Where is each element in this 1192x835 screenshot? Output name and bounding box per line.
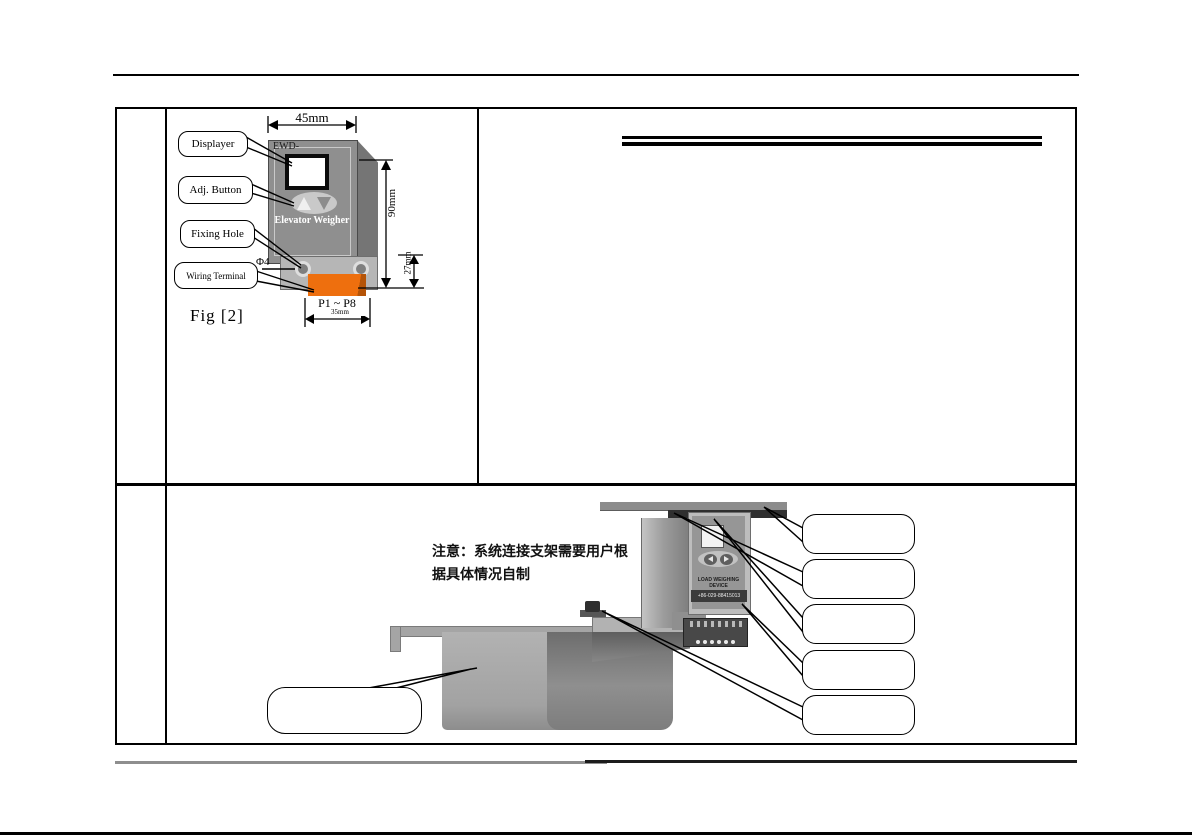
table-row-divider — [117, 483, 1075, 486]
wiring-terminal-label: Wiring Terminal — [186, 271, 246, 281]
callout-bubble-1 — [802, 514, 915, 554]
installed-device-title: LOAD WEIGHING DEVICE — [689, 577, 748, 589]
logo-left-icon — [704, 554, 717, 565]
fixing-hole-label: Fixing Hole — [191, 228, 244, 240]
down-arrow-icon — [317, 197, 331, 210]
device-model-text: EWD- — [273, 141, 299, 152]
connector-pins — [690, 621, 742, 627]
installed-device-logo — [698, 551, 738, 567]
callout-bubble-2 — [802, 559, 915, 599]
callout-wiring-terminal: Wiring Terminal — [174, 262, 258, 289]
callout-bubble-3 — [802, 604, 915, 644]
callout-displayer: Displayer — [178, 131, 248, 157]
dim-width-label: 45mm — [268, 110, 356, 126]
installed-device-phone: +86-029-88415013 — [698, 593, 740, 599]
installed-device-display — [701, 525, 724, 548]
callout-bubble-4 — [802, 650, 915, 690]
footer-rule-dark — [585, 760, 1077, 763]
logo-right-icon — [720, 554, 733, 565]
up-arrow-icon — [297, 197, 311, 210]
install-note: 注意：系统连接支架需要用户根 据具体情况自制 — [432, 540, 642, 586]
callout-fixing-hole: Fixing Hole — [180, 220, 255, 248]
figure-caption: Fig [2] — [190, 306, 244, 326]
device-display-window — [285, 154, 329, 190]
double-rule-bottom — [622, 142, 1042, 146]
manual-page: EWD- Elevator Weigher P1 ~ P8 — [0, 0, 1192, 835]
double-rule-top — [622, 136, 1042, 139]
displayer-label: Displayer — [192, 138, 235, 150]
table-left-column-divider — [165, 109, 167, 743]
connector-dots — [696, 640, 735, 644]
wiring-connector — [683, 618, 748, 647]
car-floor-lip — [390, 626, 401, 652]
footer-rule-gray — [115, 761, 607, 764]
dim-height-label: 90mm — [386, 189, 398, 217]
callout-adj-button: Adj. Button — [178, 176, 253, 204]
installed-device-phone-strip: +86-029-88415013 — [691, 590, 747, 602]
header-rule — [113, 74, 1079, 76]
install-note-line1: 注意：系统连接支架需要用户根 — [432, 540, 642, 563]
callout-bubble-left — [267, 687, 422, 734]
bracket-bolt — [585, 601, 600, 612]
install-note-line2: 据具体情况自制 — [432, 563, 642, 586]
adjust-button-pad — [291, 192, 337, 214]
adj-button-label: Adj. Button — [190, 184, 242, 196]
dim-flange-label: 27mm — [403, 251, 413, 274]
wiring-terminal-block — [308, 274, 366, 296]
callout-bubble-5 — [802, 695, 915, 735]
table-top-row-divider — [477, 109, 479, 485]
dim-hole-diameter-label: Φ4 — [256, 256, 270, 268]
device-product-name: Elevator Weigher — [268, 215, 356, 226]
dim-terminal-width-label: 35mm — [315, 308, 365, 316]
